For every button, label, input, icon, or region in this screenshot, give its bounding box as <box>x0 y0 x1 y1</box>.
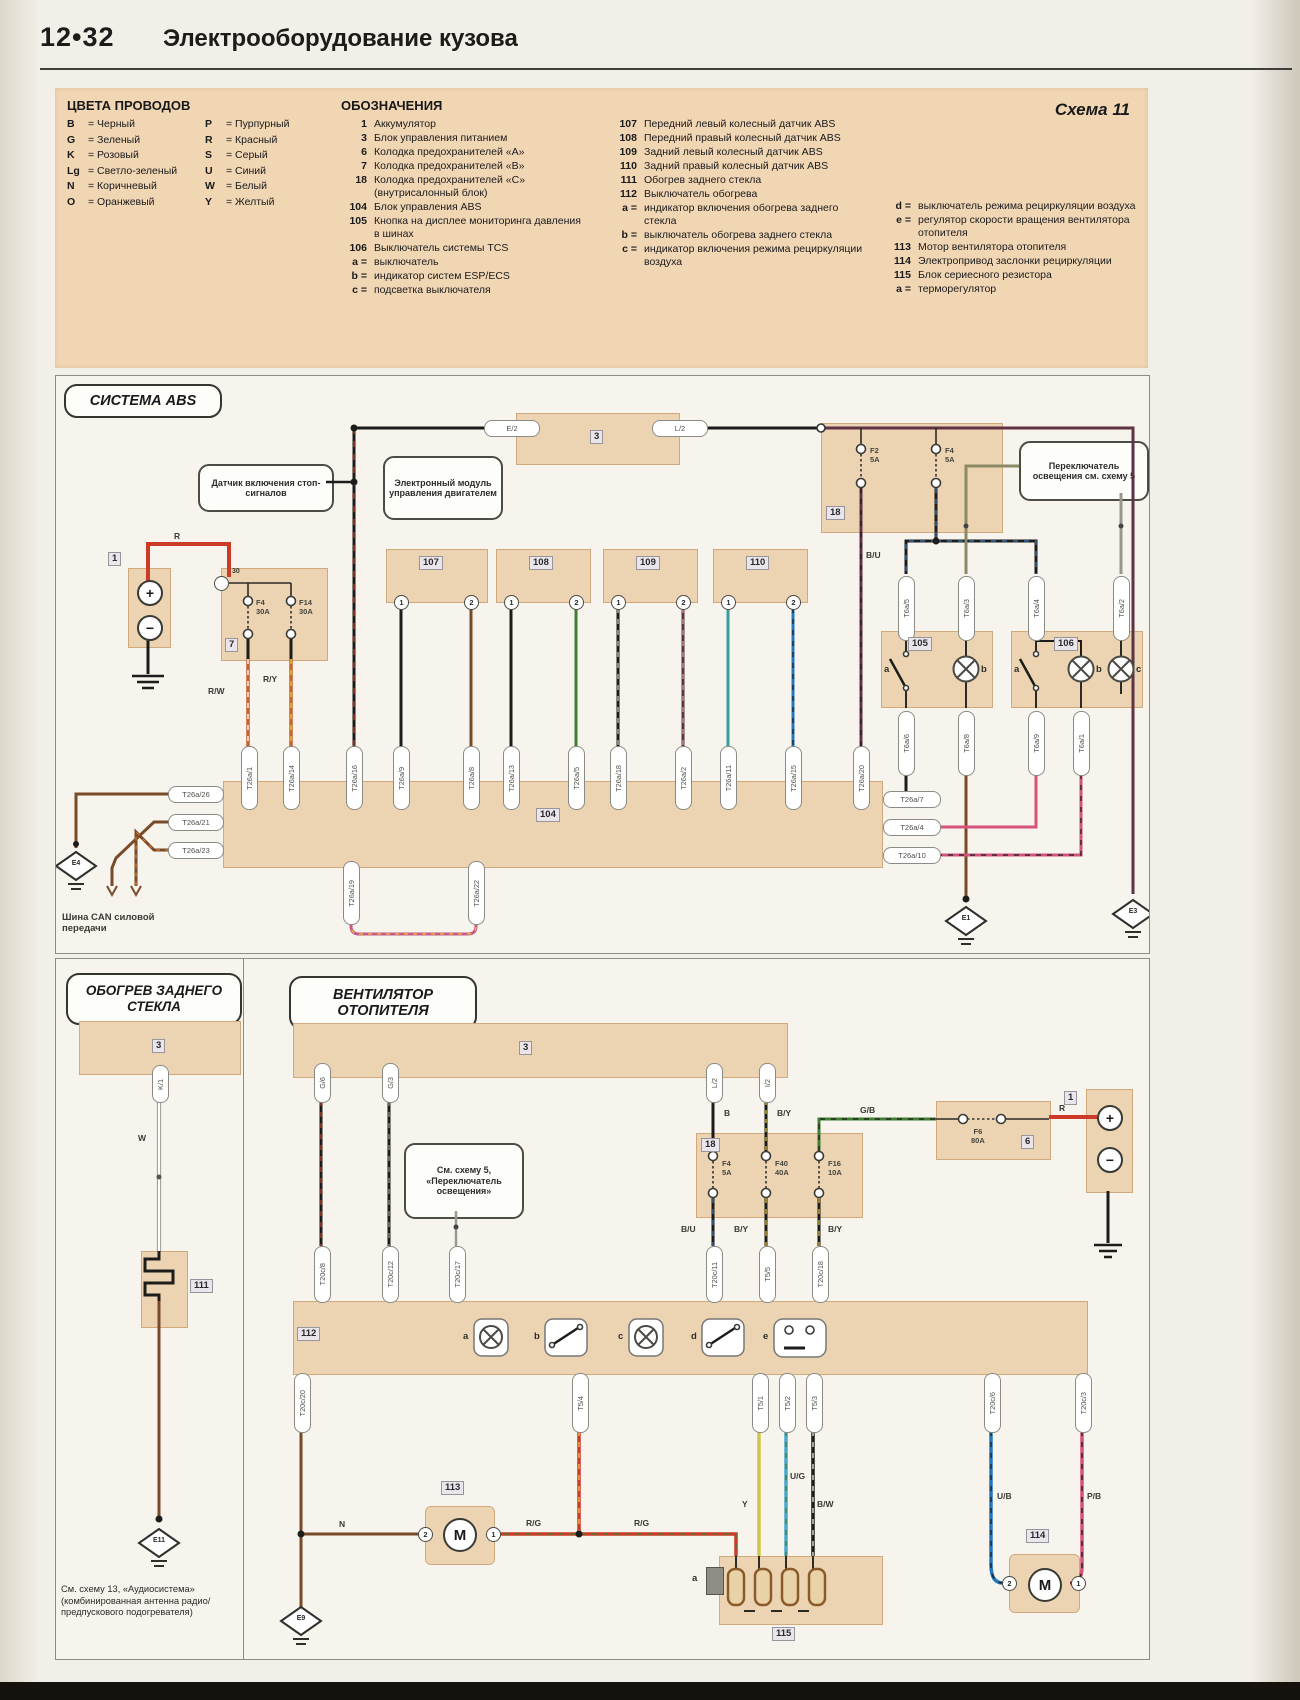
connector-capsule: T6a/9 <box>1028 711 1045 776</box>
sensor-107-pin1: 1 <box>394 595 409 610</box>
connector-capsule: T6a/5 <box>898 576 915 641</box>
connector-capsule: T20c/11 <box>706 1246 723 1303</box>
designation-item: 106Выключатель системы TCS <box>341 242 587 255</box>
designation-item: 112Выключатель обогрева <box>611 188 867 201</box>
connector-capsule: T6a/2 <box>1113 576 1130 641</box>
designation-item: d =выключатель режима рециркуляции возду… <box>885 200 1141 213</box>
heated-window-111-block <box>141 1251 188 1328</box>
thermo-regulator-a <box>706 1567 724 1595</box>
wire-label-rg: R/G <box>526 1518 541 1528</box>
fusebox-6-tag: 6 <box>1021 1135 1034 1149</box>
ground-e3-label: E3 <box>1120 908 1146 915</box>
connector-capsule: T26a/14 <box>283 746 300 810</box>
wire-color-item: R= Красный <box>205 134 331 147</box>
designation-item: c =подсветка выключателя <box>341 284 587 297</box>
element-letter-b: b <box>981 664 987 675</box>
sensor-108-pin1: 1 <box>504 595 519 610</box>
abs-control-104-block <box>223 781 883 868</box>
designation-item: a =индикатор включения обогрева заднего … <box>611 202 867 228</box>
fan-title: ВЕНТИЛЯТОР ОТОПИТЕЛЯ <box>289 976 477 1030</box>
wire-label-r: R <box>174 531 180 541</box>
connector-e2: E/2 <box>484 420 540 437</box>
connector-capsule: T26a/9 <box>393 746 410 810</box>
rear-window-heater-section: ОБОГРЕВ ЗАДНЕГО СТЕКЛА 3 K/1 W 111 E11 С… <box>55 958 245 1660</box>
sensor-109-pin2: 2 <box>676 595 691 610</box>
element-letter-b: b <box>534 1331 540 1342</box>
designation-item: 107Передний левый колесный датчик ABS <box>611 118 867 131</box>
can-bus-wires <box>73 794 169 895</box>
heater-title: ОБОГРЕВ ЗАДНЕГО СТЕКЛА <box>66 973 242 1025</box>
wire-color-item: Lg= Светло-зеленый <box>67 165 199 178</box>
designation-item: a =выключатель <box>341 256 587 269</box>
fuse-f14-label: F1430A <box>299 598 313 616</box>
connector-capsule: T26a/2 <box>675 746 692 810</box>
connector-capsule: T20c/12 <box>382 1246 399 1303</box>
battery-tag: 1 <box>108 552 121 566</box>
connector-capsule: T20c/20 <box>294 1373 311 1433</box>
wire-color-item: P= Пурпурный <box>205 118 331 131</box>
battery-tag: 1 <box>1064 1091 1077 1105</box>
connector-capsule: T26a/1 <box>241 746 258 810</box>
connector-capsule: T26a/10 <box>883 847 941 864</box>
wire-label-rw: R/W <box>208 686 225 696</box>
bottom-loop-wire <box>351 921 476 934</box>
motor-113-pin1: 1 <box>486 1527 501 1542</box>
element-letter-b: b <box>1096 664 1102 675</box>
pin-30 <box>214 576 229 591</box>
callout-light-switch: Переключатель освещения см. схему 5 <box>1019 441 1149 501</box>
connector-capsule: G/3 <box>382 1063 399 1103</box>
connector-capsule: L/2 <box>706 1063 723 1103</box>
fuse-f4-label: F45A <box>945 446 955 464</box>
element-letter-e: e <box>763 1331 768 1342</box>
fusebox-7-tag: 7 <box>225 638 238 652</box>
designation-item: 114Электропривод заслонки рециркуляции <box>885 255 1141 268</box>
connector-k1: K/1 <box>152 1065 169 1103</box>
connector-capsule: T20c/18 <box>812 1246 829 1303</box>
sensor-109-tag: 109 <box>636 556 660 570</box>
designation-item: e =регулятор скорости вращения вентилято… <box>885 214 1141 240</box>
output-wires <box>298 1431 1083 1607</box>
connector-capsule: T20c/6 <box>984 1373 1001 1433</box>
pin-30-label: 30 <box>232 568 240 575</box>
fusebox-6 <box>936 1101 1051 1160</box>
connector-capsule: T26a/13 <box>503 746 520 810</box>
legend-panel: Схема 11 ЦВЕТА ПРОВОДОВ B= ЧерныйG= Зеле… <box>55 88 1148 368</box>
connector-capsule: T26a/7 <box>883 791 941 808</box>
wire-label-w: W <box>138 1133 146 1143</box>
sensor-110-pin1: 1 <box>721 595 736 610</box>
fusebox-18-tag: 18 <box>701 1138 720 1152</box>
designation-item: 115Блок сериесного резистора <box>885 269 1141 282</box>
battery-plus: + <box>1097 1105 1123 1131</box>
wire-label-rg: R/G <box>634 1518 649 1528</box>
ground-e1-label: E1 <box>953 915 979 922</box>
motor-113-symbol: M <box>443 1518 477 1552</box>
connector-capsule: T5/3 <box>806 1373 823 1433</box>
connector-capsule: T26a/20 <box>853 746 870 810</box>
wire-label-bw: B/W <box>817 1499 834 1509</box>
element-letter-a: a <box>692 1573 697 1584</box>
motor-113-pin2: 2 <box>418 1527 433 1542</box>
motor-113-tag: 113 <box>441 1481 464 1495</box>
connector-capsule: T26a/8 <box>463 746 480 810</box>
connector-capsule: T26a/21 <box>168 814 224 831</box>
block-3-tag: 3 <box>519 1041 532 1055</box>
sensor-107-tag: 107 <box>419 556 443 570</box>
element-letter-a: a <box>1014 664 1019 675</box>
block-111-tag: 111 <box>190 1279 213 1293</box>
block-115-tag: 115 <box>772 1627 795 1641</box>
connector-capsule: T26a/11 <box>720 746 737 810</box>
element-letter-a: a <box>884 664 889 675</box>
wire-color-item: U= Синий <box>205 165 331 178</box>
designation-item: b =индикатор систем ESP/ECS <box>341 270 587 283</box>
connector-capsule: T20c/17 <box>449 1246 466 1303</box>
designation-item: 108Передний правый колесный датчик ABS <box>611 132 867 145</box>
connector-capsule: T26a/4 <box>883 819 941 836</box>
wire-colors-col2: P= ПурпурныйR= КрасныйS= СерыйU= СинийW=… <box>205 118 331 211</box>
connector-capsule: T5/5 <box>759 1246 776 1303</box>
battery-plus: + <box>137 580 163 606</box>
motor-114-symbol: M <box>1028 1568 1062 1602</box>
element-letter-a: a <box>463 1331 468 1342</box>
designations-col1: 1Аккумулятор3Блок управления питанием6Ко… <box>341 118 587 298</box>
header-rule <box>40 68 1292 70</box>
tcs-106-tag: 106 <box>1054 637 1078 651</box>
wire-color-item: K= Розовый <box>67 149 199 162</box>
wire-label-gb: G/B <box>860 1105 875 1115</box>
designation-item: 104Блок управления ABS <box>341 201 587 214</box>
fuse-f4-30a-label: F430A <box>256 598 270 616</box>
element-letter-c: c <box>618 1331 623 1342</box>
wire-label-bu: B/U <box>681 1224 696 1234</box>
connector-capsule: T26a/19 <box>343 861 360 925</box>
fusebox-18 <box>821 423 1003 533</box>
heater-fan-section: ВЕНТИЛЯТОР ОТОПИТЕЛЯ 3 G/6 G/3 L/2 I/2 С… <box>243 958 1150 1660</box>
wire-color-item: O= Оранжевый <box>67 196 199 209</box>
designations-col3: d =выключатель режима рециркуляции возду… <box>885 200 1141 297</box>
fusebox-18-tag: 18 <box>826 506 845 520</box>
wire-label-by: B/Y <box>734 1224 748 1234</box>
connector-capsule: T20c/3 <box>1075 1373 1092 1433</box>
connector-capsule: T6a/6 <box>898 711 915 776</box>
battery-minus: − <box>1097 1147 1123 1173</box>
ground-symbols <box>281 1607 321 1644</box>
wire-color-item: Y= Желтый <box>205 196 331 209</box>
scan-edge-strip <box>0 1682 1300 1700</box>
wire-label-by: B/Y <box>828 1224 842 1234</box>
wire-label-ry: R/Y <box>263 674 277 684</box>
sensor-108-pin2: 2 <box>569 595 584 610</box>
designation-item: b =выключатель обогрева заднего стекла <box>611 229 867 242</box>
connector-capsule: T6a/1 <box>1073 711 1090 776</box>
block-3-tag: 3 <box>590 430 603 444</box>
connector-capsule: T5/2 <box>779 1373 796 1433</box>
wire-label-by: B/Y <box>777 1108 791 1118</box>
fuse-f4-label: F45A <box>722 1159 732 1177</box>
abs-section: СИСТЕМА ABS Датчик включения стоп-сигнал… <box>55 375 1150 954</box>
scheme-label: Схема 11 <box>1055 100 1130 120</box>
abs-title: СИСТЕМА ABS <box>64 384 222 418</box>
element-letter-c: c <box>1136 664 1141 675</box>
tpms-105-tag: 105 <box>908 637 932 651</box>
connector-capsule: T5/1 <box>752 1373 769 1433</box>
designation-item: c =индикатор включения режима рециркуляц… <box>611 243 867 269</box>
battery-minus: − <box>137 615 163 641</box>
connector-capsule: T5/4 <box>572 1373 589 1433</box>
block-112-tag: 112 <box>297 1327 320 1341</box>
ground-e4-label: E4 <box>63 860 89 867</box>
sensor-110-pin2: 2 <box>786 595 801 610</box>
resistor-115-block <box>719 1556 883 1625</box>
wire-label-bu: B/U <box>866 550 881 560</box>
element-letter-d: d <box>691 1331 697 1342</box>
callout-stop-signal: Датчик включения стоп-сигналов <box>198 464 334 512</box>
connector-capsule: T6a/3 <box>958 576 975 641</box>
tpms-switch-105-block <box>881 631 993 708</box>
wire-label-b: B <box>724 1108 730 1118</box>
wire-color-item: N= Коричневый <box>67 180 199 193</box>
designation-item: 111Обогрев заднего стекла <box>611 174 867 187</box>
wire-color-item: G= Зеленый <box>67 134 199 147</box>
designation-item: 110Задний правый колесный датчик ABS <box>611 160 867 173</box>
page-number: 12•32 <box>40 22 115 53</box>
designation-item: 18Колодка предохранителей «С» (внутрисал… <box>341 174 587 200</box>
abs-sensor-wires <box>401 608 793 748</box>
sensor-108-tag: 108 <box>529 556 553 570</box>
wire-label-pb: P/B <box>1087 1491 1101 1501</box>
wire-color-item: B= Черный <box>67 118 199 131</box>
sensor-110-tag: 110 <box>746 556 769 570</box>
designation-item: 7Колодка предохранителей «В» <box>341 160 587 173</box>
wire-colors-col1: B= ЧерныйG= ЗеленыйK= РозовыйLg= Светло-… <box>67 118 199 211</box>
connector-capsule: T26a/22 <box>468 861 485 925</box>
wire-colors-title: ЦВЕТА ПРОВОДОВ <box>67 98 190 113</box>
wire-label-r: R <box>1059 1103 1065 1113</box>
abs-control-104-tag: 104 <box>536 808 560 822</box>
motor-114-tag: 114 <box>1026 1529 1049 1543</box>
motor-114-pin1: 1 <box>1071 1576 1086 1591</box>
designation-item: a =терморегулятор <box>885 283 1141 296</box>
designation-item: 3Блок управления питанием <box>341 132 587 145</box>
connector-capsule: T26a/18 <box>610 746 627 810</box>
ground-e9-label: E9 <box>288 1615 314 1622</box>
connector-capsule: T26a/16 <box>346 746 363 810</box>
wire-label-y: Y <box>742 1499 748 1509</box>
fuse-f16-label: F1610A <box>828 1159 842 1177</box>
connector-capsule: T6a/4 <box>1028 576 1045 641</box>
callout-light-switch-ref: См. схему 5, «Переключатель освещения» <box>404 1143 524 1219</box>
designation-item: 113Мотор вентилятора отопителя <box>885 241 1141 254</box>
fuse-f6-label: F680A <box>971 1127 985 1145</box>
sensor-107-pin2: 2 <box>464 595 479 610</box>
wire-label-ub: U/B <box>997 1491 1012 1501</box>
designation-item: 109Задний левый колесный датчик ABS <box>611 146 867 159</box>
connector-capsule: T6a/8 <box>958 711 975 776</box>
designations-title: ОБОЗНАЧЕНИЯ <box>341 98 442 113</box>
designations-col2: 107Передний левый колесный датчик ABS108… <box>611 118 867 270</box>
heater-note: См. схему 13, «Аудиосистема» (комбиниров… <box>61 1584 239 1619</box>
ground-e11-label: E11 <box>146 1537 172 1544</box>
connector-capsule: T26a/5 <box>568 746 585 810</box>
connector-capsule: T26a/23 <box>168 842 224 859</box>
wire-color-item: S= Серый <box>205 149 331 162</box>
block-3-tag: 3 <box>152 1039 165 1053</box>
motor-114-pin2: 2 <box>1002 1576 1017 1591</box>
connector-l2: L/2 <box>652 420 708 437</box>
sensor-109-pin1: 1 <box>611 595 626 610</box>
callout-engine-module: Электронный модуль управления двигателем <box>383 456 503 520</box>
wire-color-item: W= Белый <box>205 180 331 193</box>
designation-item: 1Аккумулятор <box>341 118 587 131</box>
wire-label-n: N <box>339 1519 345 1529</box>
page-title: Электрооборудование кузова <box>163 25 518 53</box>
connector-capsule: T20c/8 <box>314 1246 331 1303</box>
fuse-f40-label: F4040A <box>775 1159 789 1177</box>
fuse-f2-label: F25A <box>870 446 880 464</box>
connector-capsule: T26a/26 <box>168 786 224 803</box>
connector-capsule: I/2 <box>759 1063 776 1103</box>
connector-capsule: T26a/15 <box>785 746 802 810</box>
connector-capsule: G/6 <box>314 1063 331 1103</box>
designation-item: 6Колодка предохранителей «А» <box>341 146 587 159</box>
designation-item: 105Кнопка на дисплее мониторинга давлени… <box>341 215 587 241</box>
can-bus-label: Шина CAN силовой передачи <box>62 912 187 934</box>
wire-label-ug: U/G <box>790 1471 805 1481</box>
